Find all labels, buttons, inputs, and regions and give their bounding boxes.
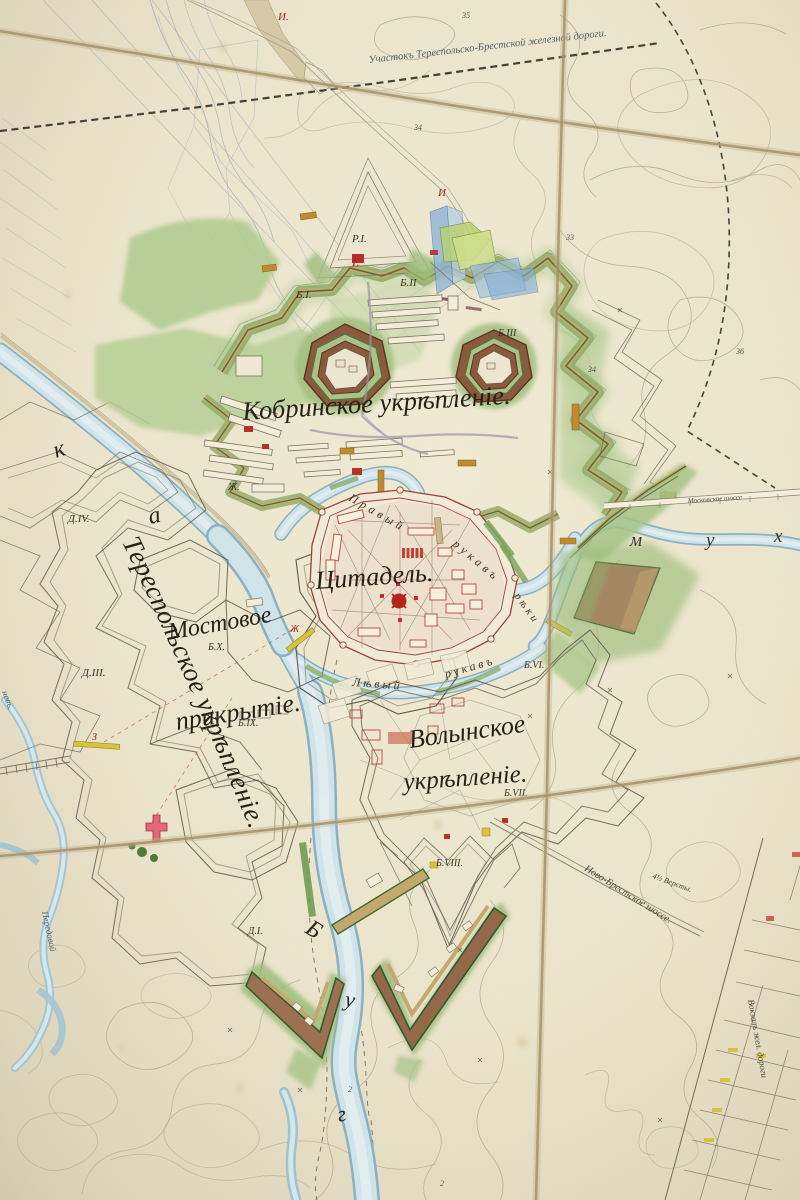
svg-text:I.: I. [351, 254, 360, 269]
svg-text:Б.VIII.: Б.VIII. [435, 858, 463, 869]
svg-text:Б.Х.: Б.Х. [207, 642, 225, 653]
svg-text:Д.I.: Д.I. [247, 926, 263, 937]
svg-text:И: И [437, 187, 447, 199]
svg-text:З: З [92, 732, 97, 743]
svg-text:2: 2 [348, 1085, 352, 1094]
svg-text:м: м [629, 530, 642, 551]
svg-text:Б.III: Б.III [497, 328, 517, 339]
svg-text:35: 35 [461, 11, 470, 20]
svg-text:Р.I.: Р.I. [351, 233, 367, 245]
svg-text:Б.II: Б.II [399, 277, 418, 289]
svg-text:х: х [773, 526, 783, 547]
svg-text:34: 34 [587, 365, 596, 374]
svg-text:36: 36 [735, 347, 744, 356]
svg-text:Д.IV.: Д.IV. [67, 513, 89, 525]
svg-text:Ж.: Ж. [227, 482, 240, 493]
svg-text:2: 2 [440, 1179, 444, 1188]
svg-text:И.: И. [277, 11, 289, 23]
svg-text:Б.VI.: Б.VI. [523, 660, 544, 671]
svg-text:Д.III.: Д.III. [81, 667, 106, 679]
svg-text:Ж: Ж [289, 624, 300, 635]
svg-text:у: у [704, 530, 715, 551]
svg-text:34: 34 [413, 123, 422, 132]
svg-text:33: 33 [565, 233, 574, 242]
svg-text:Б.I.: Б.I. [295, 289, 312, 301]
